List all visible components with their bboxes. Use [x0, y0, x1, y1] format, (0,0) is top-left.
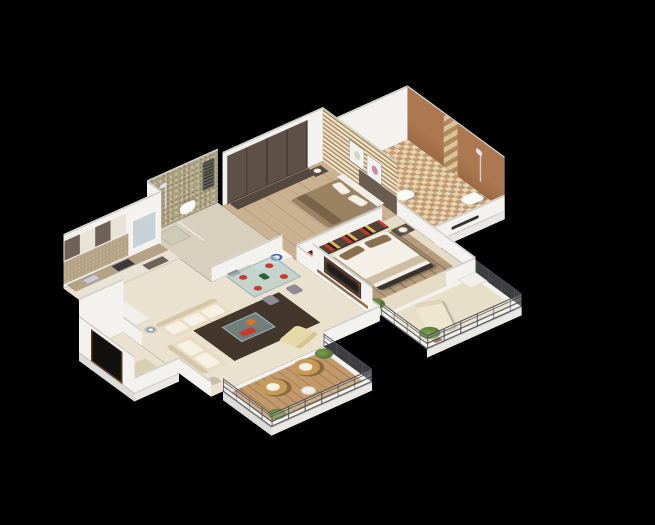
table-lamp	[312, 168, 323, 174]
table-lamp	[397, 226, 409, 233]
place-setting	[252, 285, 264, 292]
louver-vent	[203, 158, 215, 192]
accent-tile-strip	[444, 113, 458, 176]
sofa-cushion	[193, 352, 221, 369]
magazines	[238, 327, 257, 337]
place-setting	[278, 273, 290, 280]
floor-plan-render	[0, 0, 655, 525]
apartment-scene	[5, 102, 655, 454]
shower-head	[476, 147, 482, 157]
wall-hung-toilet	[180, 199, 195, 217]
place-setting	[237, 274, 249, 281]
bottles	[258, 273, 270, 280]
towel-rail	[452, 215, 479, 230]
fruit-bowl	[244, 318, 258, 326]
place-setting	[263, 262, 275, 269]
framed-artwork	[350, 140, 364, 170]
